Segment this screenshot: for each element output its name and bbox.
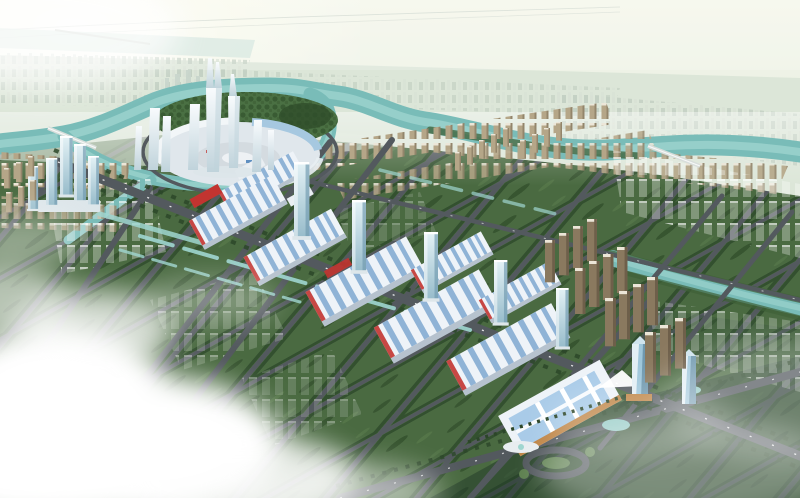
fountain: [518, 444, 524, 450]
glass-tower: [87, 156, 100, 207]
glass-tower: [493, 260, 509, 326]
aerial-render-canvas: Bird's-eye masterplan rendering of a new…: [0, 0, 800, 498]
glass-tower: [555, 288, 570, 350]
glass-tower: [292, 162, 311, 240]
glass-tower: [423, 232, 440, 302]
glass-tower: [59, 136, 74, 198]
masterplan-rendering: Bird's-eye masterplan rendering of a new…: [0, 0, 800, 498]
glass-tower: [73, 144, 87, 203]
glass-tower: [45, 158, 59, 207]
glass-tower: [351, 200, 368, 274]
